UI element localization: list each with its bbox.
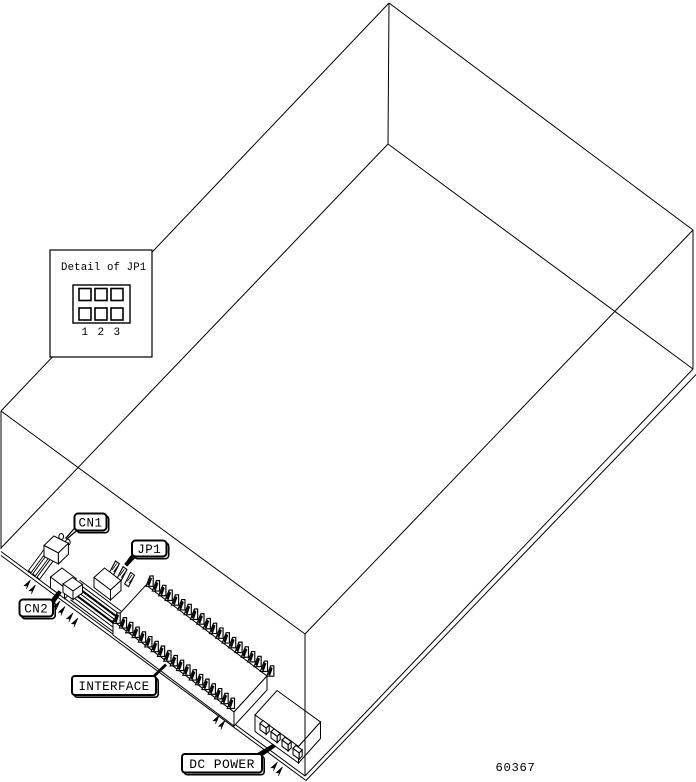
svg-text:CN2: CN2 bbox=[24, 603, 48, 617]
svg-text:Detail of JP1: Detail of JP1 bbox=[61, 262, 146, 274]
svg-text:JP1: JP1 bbox=[137, 543, 161, 557]
svg-text:3: 3 bbox=[114, 327, 121, 339]
svg-text:60367: 60367 bbox=[496, 761, 536, 775]
svg-text:2: 2 bbox=[98, 327, 105, 339]
svg-text:CN1: CN1 bbox=[78, 517, 102, 531]
svg-text:1: 1 bbox=[82, 327, 89, 339]
svg-text:INTERFACE: INTERFACE bbox=[78, 680, 149, 694]
svg-text:DC POWER: DC POWER bbox=[189, 757, 255, 772]
